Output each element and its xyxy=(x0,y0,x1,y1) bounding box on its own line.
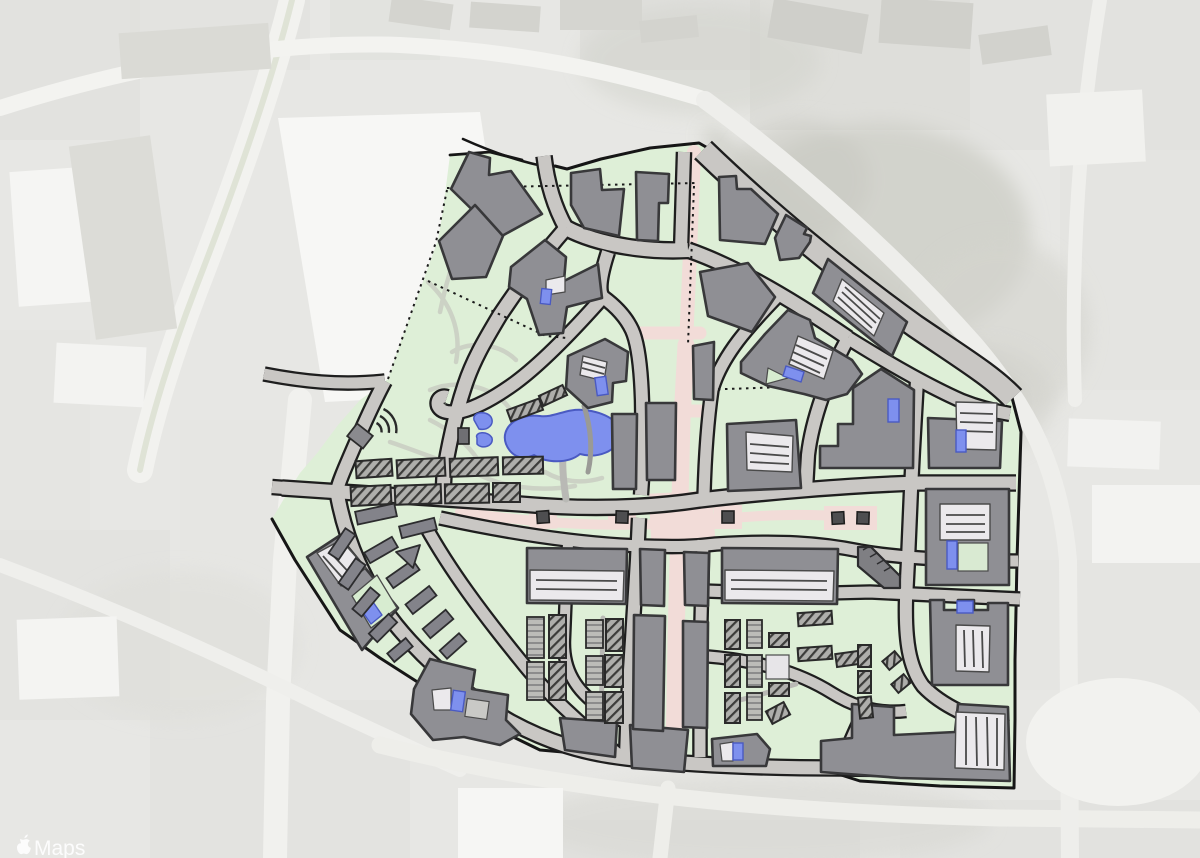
svg-text:Maps: Maps xyxy=(34,837,85,858)
